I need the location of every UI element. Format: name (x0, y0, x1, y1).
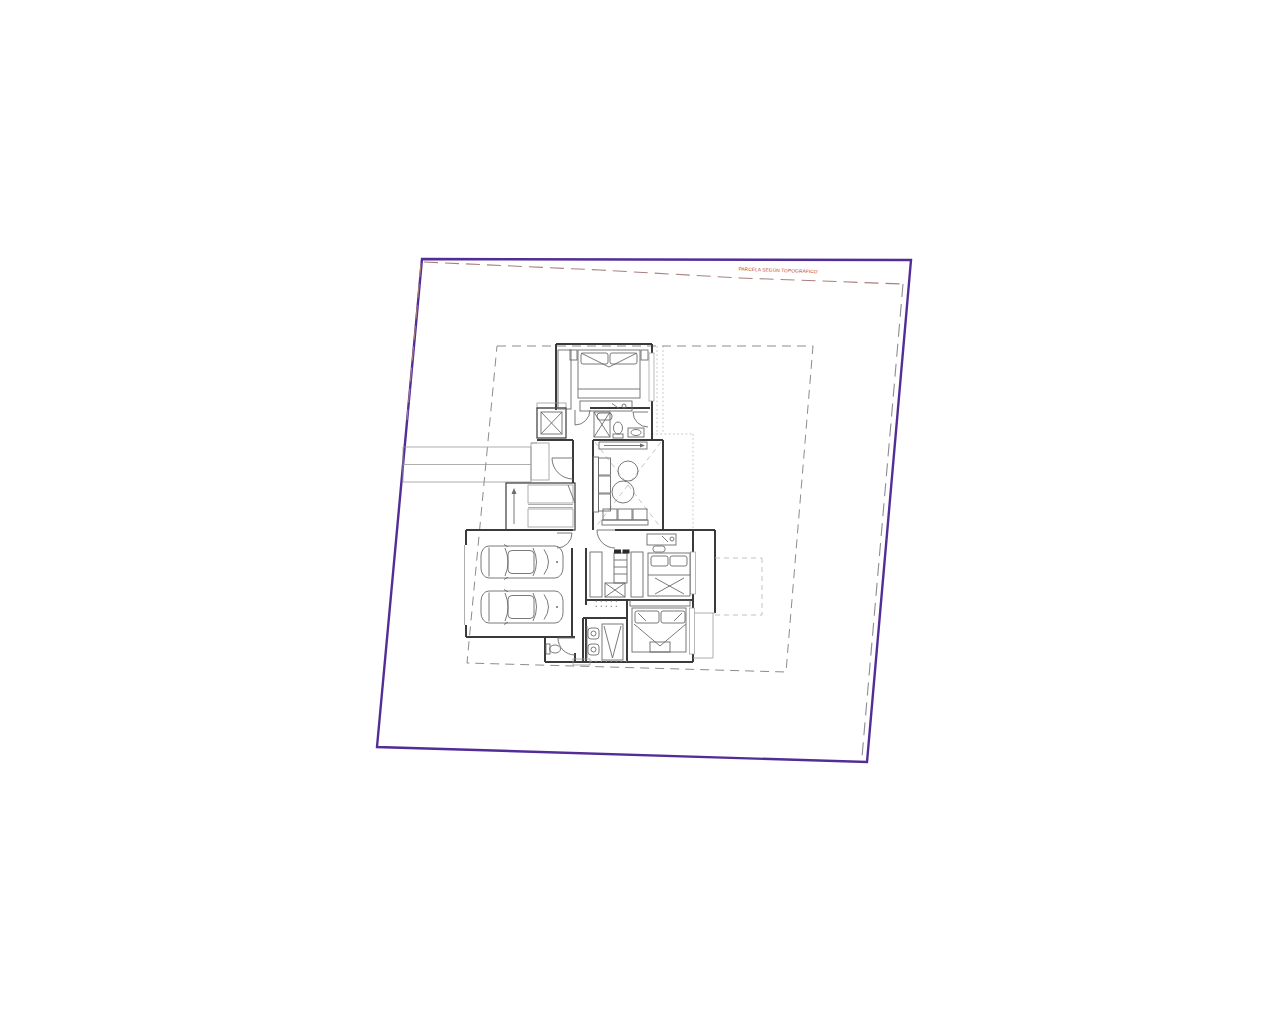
exterior-stairs (403, 443, 573, 482)
bathroom-bottom (587, 624, 627, 663)
wardrobe-top (558, 350, 571, 409)
round-table (618, 461, 638, 481)
bedroom-bottom (630, 600, 690, 652)
pocket-door-mark (614, 550, 621, 554)
stair-flight-narrow (531, 443, 549, 480)
floor-plan-canvas: PARCELA SEGÚN TOPOGRÁFICO (0, 0, 1280, 1024)
nightstand (641, 350, 648, 360)
parcel-survey-line-top (424, 262, 903, 284)
door-arc-middle-bedroom (597, 530, 615, 548)
window-middle-bedroom (691, 552, 696, 594)
overhang-dotted-outline (652, 346, 693, 528)
walls (465, 344, 763, 662)
sideboard (599, 442, 647, 449)
drawing-page: PARCELA SEGÚN TOPOGRÁFICO (0, 0, 1280, 1024)
door-arc-hall-entry (552, 458, 573, 479)
interior-staircase (506, 483, 575, 530)
bathroom-top (594, 412, 648, 438)
terrace-dashed-edge (715, 558, 762, 615)
bed-middle (648, 553, 690, 596)
sofa-left (594, 457, 611, 512)
wc (546, 638, 575, 655)
wardrobe-right (631, 552, 643, 597)
door-arc-garage (557, 533, 572, 548)
desk-chair (653, 546, 665, 552)
pocket-door-mark (623, 550, 630, 554)
sink-bottom (588, 628, 599, 639)
dressing-mat (592, 599, 618, 608)
toilet-top (614, 422, 623, 434)
garage (481, 533, 572, 625)
window-top-bedroom (649, 353, 654, 401)
door-arc-wc (558, 638, 575, 655)
bed-bottom (632, 608, 686, 652)
elevator-shaft (537, 403, 566, 438)
car-1 (481, 545, 563, 580)
wardrobe-left (590, 552, 602, 597)
bath-mat (588, 659, 627, 663)
toilet-wc (550, 645, 561, 653)
bed-top (570, 350, 648, 398)
bedroom-top (558, 350, 648, 425)
desk-middle (647, 534, 676, 552)
site-plan: PARCELA SEGÚN TOPOGRÁFICO (377, 259, 911, 762)
door-arc-bedroom-top (575, 410, 590, 425)
sink-bottom (588, 644, 599, 655)
window-bottom-bedroom (690, 608, 695, 654)
door-arc-bathroom-top (633, 412, 648, 427)
house-plan (403, 344, 762, 665)
plot-boundary (377, 259, 911, 762)
desk-lamp (670, 537, 674, 541)
shower-dressing (605, 583, 625, 597)
car-2 (481, 590, 563, 625)
parcel-survey-line-right (862, 284, 903, 757)
void-living-area (594, 442, 662, 548)
shelf-column (614, 553, 627, 583)
shower-bottom (602, 624, 623, 660)
parcel-survey-note: PARCELA SEGÚN TOPOGRÁFICO (738, 266, 818, 275)
round-table (612, 481, 634, 503)
